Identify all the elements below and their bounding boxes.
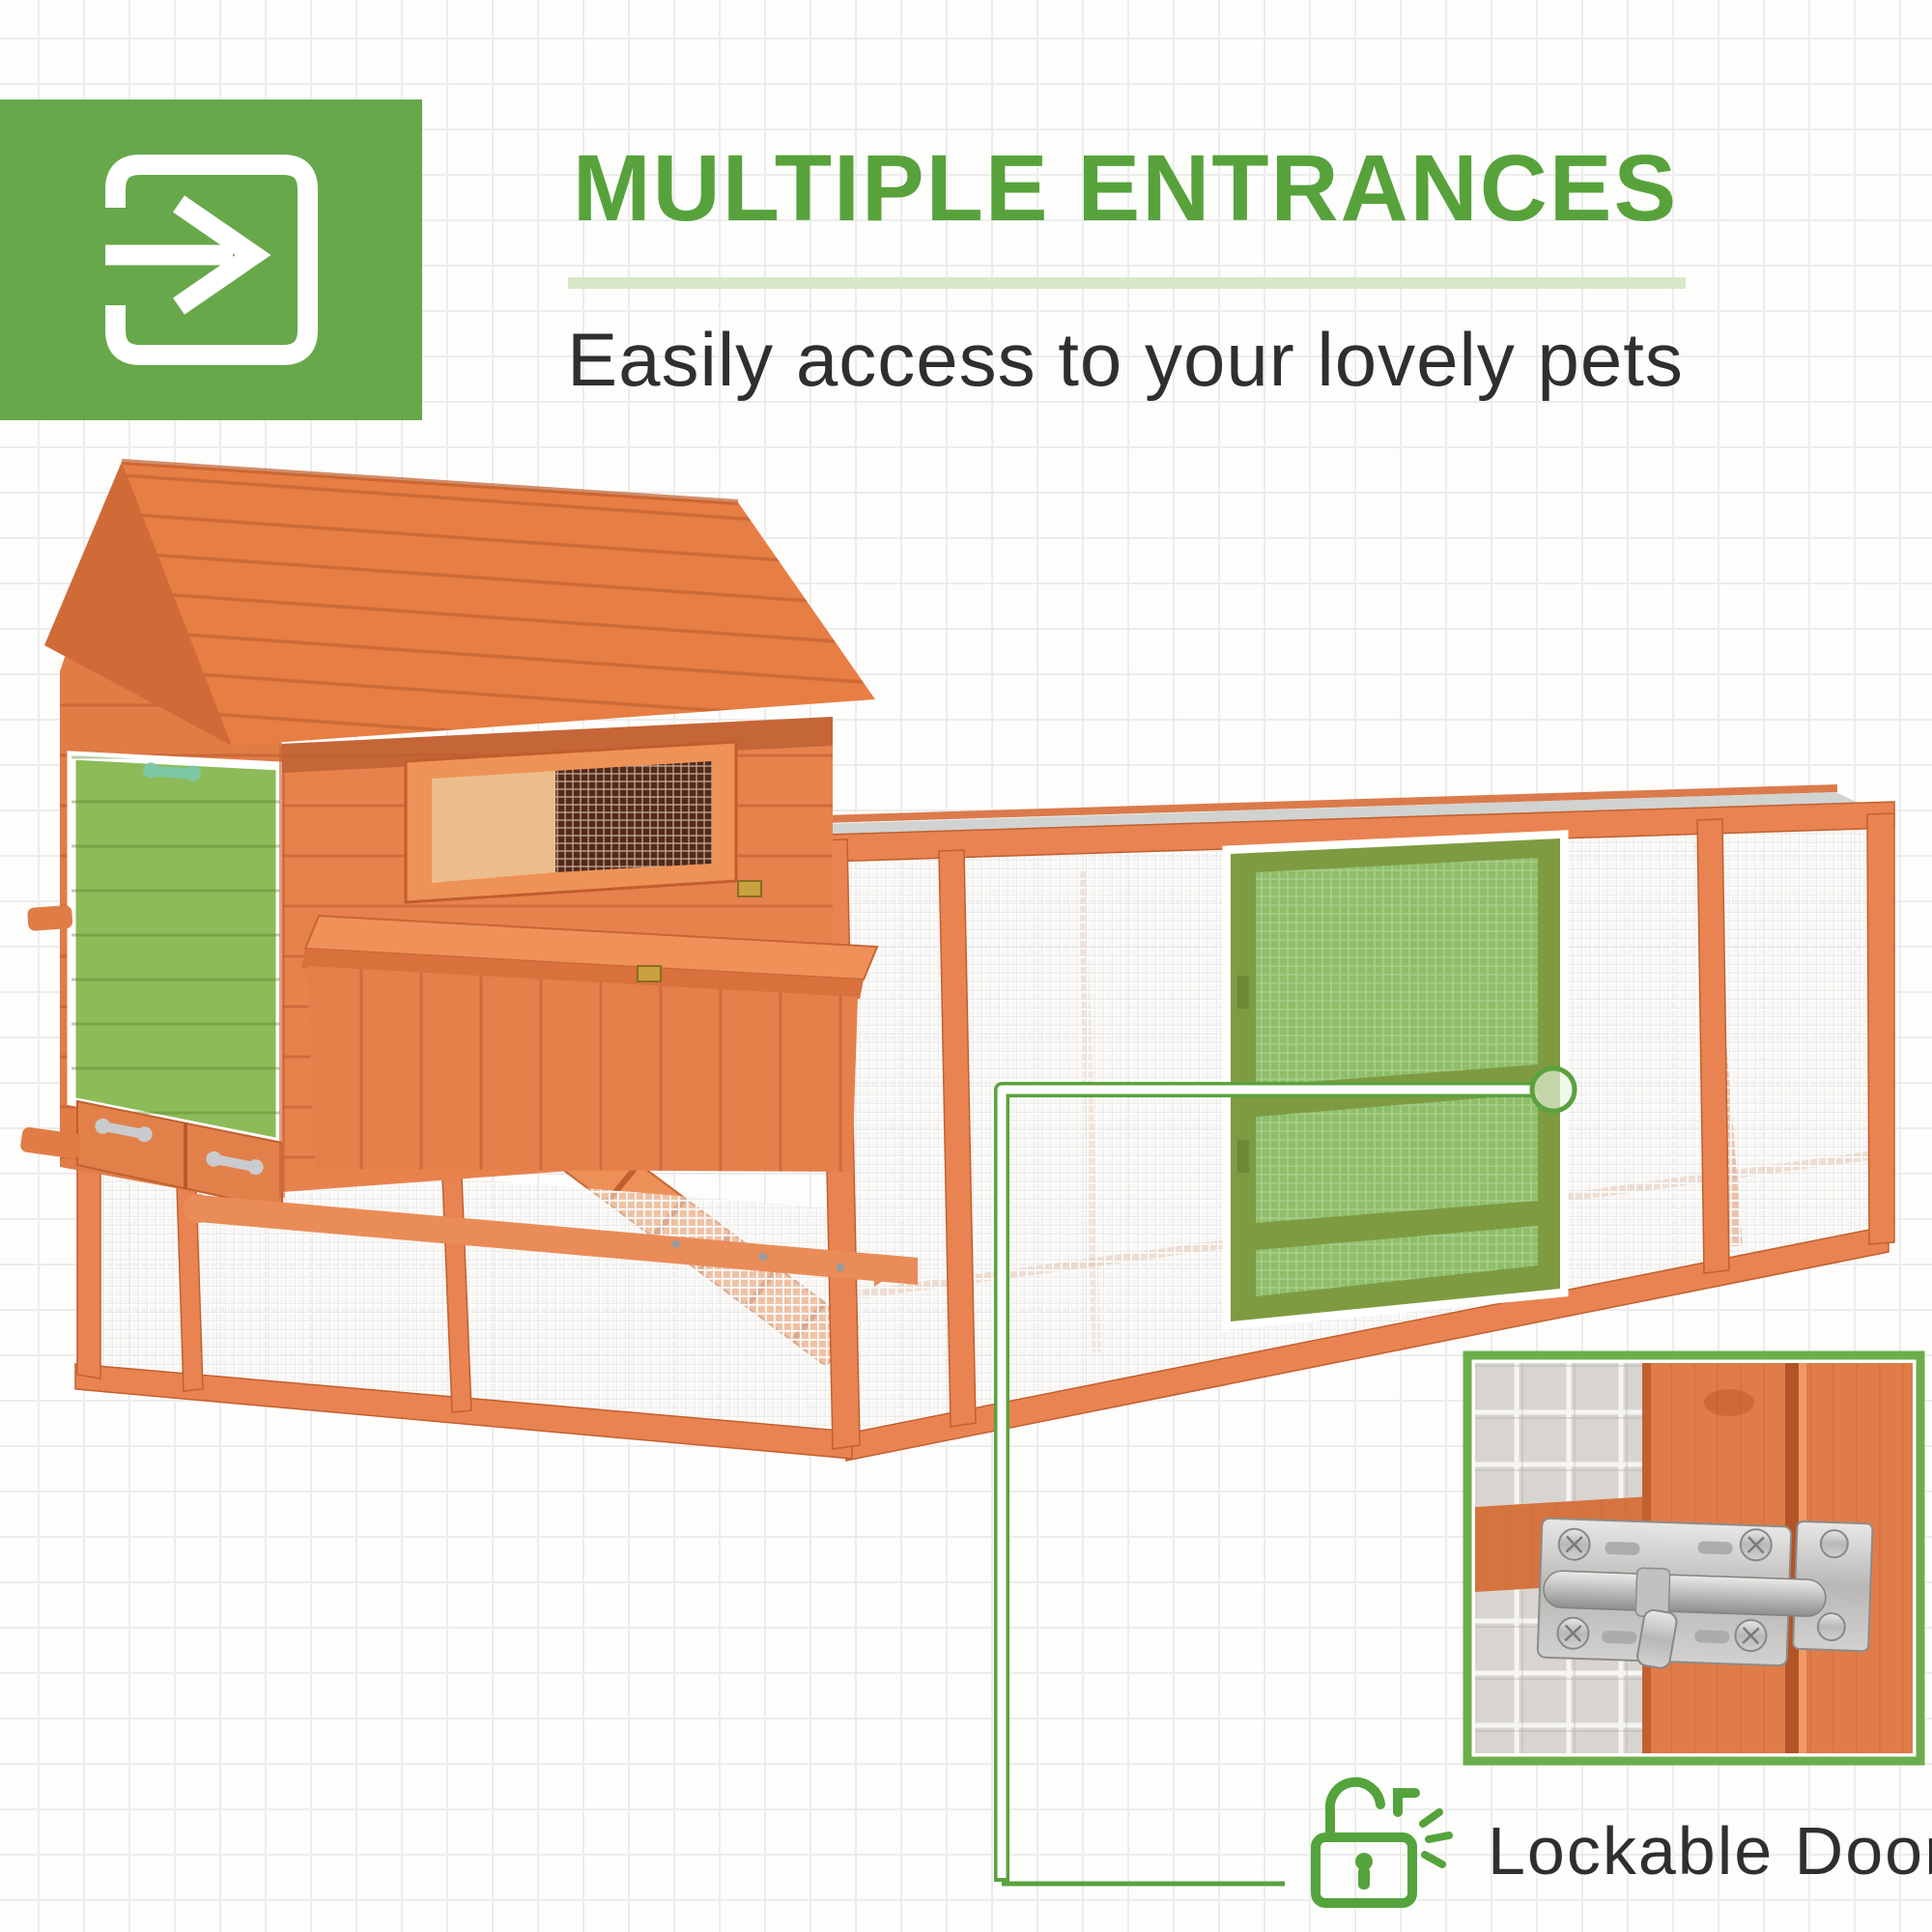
highlighted-run-door bbox=[1227, 835, 1564, 1325]
door-hinge bbox=[1237, 1140, 1249, 1173]
latch-photo bbox=[1475, 1363, 1913, 1753]
perch-stub bbox=[27, 905, 73, 931]
highlighted-house-door bbox=[71, 755, 280, 1143]
keyhole bbox=[1355, 1853, 1373, 1889]
gold-latch bbox=[738, 881, 761, 896]
vent-mesh bbox=[555, 761, 712, 872]
inset-photo bbox=[1467, 1355, 1920, 1761]
open-padlock-icon bbox=[1316, 1782, 1449, 1903]
lockable-doors-label: Lockable Doors bbox=[1488, 1817, 1932, 1885]
gold-latch bbox=[638, 966, 661, 981]
wood-knot bbox=[1704, 1389, 1754, 1416]
coop-house bbox=[19, 425, 918, 1287]
door-hinge bbox=[1237, 976, 1249, 1009]
house-window bbox=[406, 742, 736, 902]
callout-circle bbox=[1532, 1068, 1575, 1111]
coop-illustration bbox=[0, 0, 1932, 1932]
